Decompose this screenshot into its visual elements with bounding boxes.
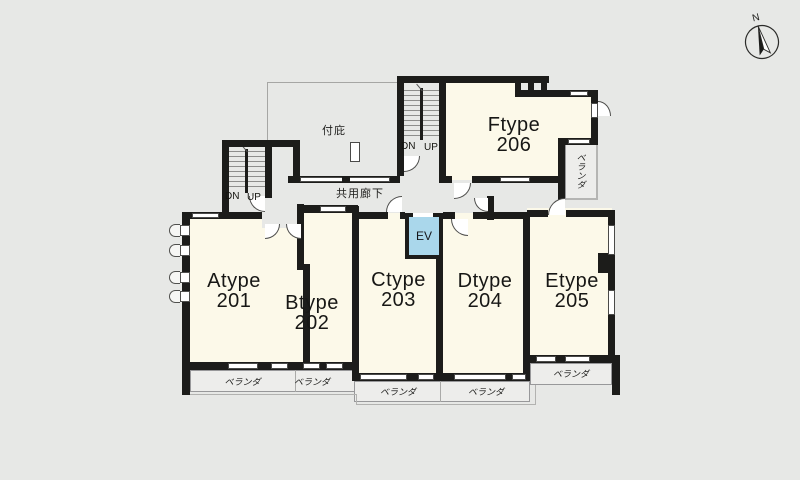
- window: [271, 363, 288, 369]
- elevator-door: [413, 213, 433, 217]
- elevator: EV: [405, 213, 443, 259]
- balcony-f: ベランダ: [565, 143, 598, 200]
- room-number: 201: [183, 291, 285, 311]
- room-label-btype: Btype 202: [272, 293, 352, 333]
- wall: [222, 140, 300, 147]
- stair-divider-right: [420, 88, 423, 140]
- window: [570, 91, 588, 96]
- wall: [352, 212, 388, 219]
- wall: [443, 212, 455, 219]
- room-number: 205: [528, 291, 616, 311]
- window: [320, 206, 346, 212]
- balcony-label-ctype: ベランダ: [354, 385, 442, 398]
- window-shutter: [180, 245, 190, 256]
- stair-divider-left: [245, 149, 248, 193]
- room-type: Btype: [272, 293, 352, 313]
- stair-down-label: DN: [225, 191, 239, 202]
- window: [512, 374, 526, 380]
- room-type: Atype: [183, 271, 285, 291]
- window-shutter: [169, 271, 180, 284]
- wall: [608, 210, 615, 225]
- room-number: 202: [272, 313, 352, 333]
- stair-up-label: UP: [424, 142, 438, 153]
- room-label-ftype: Ftype 206: [462, 115, 566, 155]
- window: [568, 139, 590, 144]
- door-arc: [598, 101, 611, 116]
- wall: [612, 355, 620, 395]
- door-arc: [404, 156, 420, 172]
- room-label-etype: Etype 205: [528, 271, 616, 311]
- room-label-ctype: Ctype 203: [357, 270, 440, 310]
- window-shutter: [169, 224, 180, 237]
- pillar: [350, 142, 360, 162]
- canopy-outline-top: [267, 82, 400, 83]
- window-mullion: [342, 176, 350, 183]
- window: [500, 177, 530, 182]
- window: [454, 374, 506, 380]
- room-type: Etype: [528, 271, 616, 291]
- door-arc: [454, 183, 471, 199]
- room-type: Ftype: [462, 115, 566, 135]
- wall: [222, 140, 229, 214]
- wall: [265, 140, 272, 198]
- window: [303, 363, 320, 369]
- canopy-label: 付庇: [304, 122, 364, 138]
- wall: [439, 76, 446, 176]
- balcony-outer-line: [535, 385, 536, 405]
- balcony-label-etype: ベランダ: [530, 367, 612, 380]
- compass-north-text: N: [751, 12, 761, 24]
- room-number: 206: [462, 135, 566, 155]
- window: [536, 356, 556, 362]
- room-type: Ctype: [357, 270, 440, 290]
- corridor-label: 共用廊下: [336, 185, 406, 201]
- floor-plan: 付庇 ベランダ ベランダ ベランダ ベランダ ベランダ ベランダ: [0, 0, 800, 480]
- room-type: Dtype: [441, 271, 529, 291]
- wall: [397, 76, 404, 176]
- canopy-outline-left: [267, 82, 268, 142]
- balcony-label-btype: ベランダ: [262, 375, 362, 388]
- wall: [439, 176, 452, 183]
- window-shutter: [180, 225, 190, 236]
- room-label-dtype: Dtype 204: [441, 271, 529, 311]
- balcony-outer-line: [356, 404, 536, 405]
- balcony-label-ftype: ベランダ: [575, 153, 588, 189]
- wall: [527, 210, 548, 217]
- compass: N: [735, 4, 791, 68]
- room-number: 204: [441, 291, 529, 311]
- window: [360, 374, 407, 380]
- room-label-atype: Atype 201: [183, 271, 285, 311]
- balcony-outer-line: [187, 394, 357, 395]
- window-shutter: [169, 290, 180, 303]
- window: [228, 363, 258, 369]
- window: [418, 374, 434, 380]
- balcony-label-dtype: ベランダ: [442, 385, 530, 398]
- window-shutter: [169, 244, 180, 257]
- window: [326, 363, 343, 369]
- window: [608, 225, 615, 255]
- door-arc: [474, 198, 488, 212]
- stair-up-label: UP: [247, 192, 261, 203]
- stair-down-label: DN: [401, 141, 415, 152]
- wall: [598, 253, 608, 273]
- door-arc: [548, 198, 565, 215]
- door-opening: [591, 103, 598, 118]
- window: [565, 356, 590, 362]
- room-number: 203: [357, 290, 440, 310]
- wall: [473, 212, 530, 219]
- window: [192, 213, 219, 218]
- elevator-label: EV: [416, 229, 432, 243]
